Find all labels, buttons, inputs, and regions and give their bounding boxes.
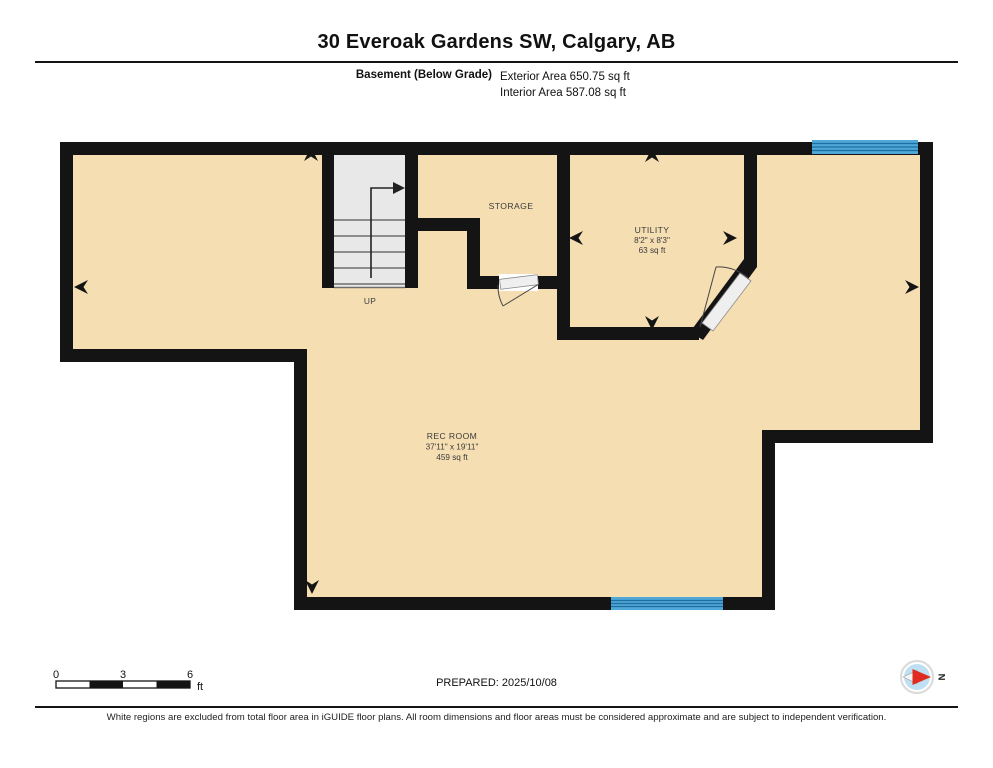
window-top-right [812,140,918,154]
floor-plan-canvas: STORAGE UTILITY 8'2" x 8'3" 63 sq ft REC… [0,0,993,768]
disclaimer-text: White regions are excluded from total fl… [0,712,993,723]
floor-area [73,155,920,597]
rec-room-area: 459 sq ft [436,453,468,462]
rec-room-dimensions: 37'11" x 19'11" [426,443,479,452]
prepared-date: PREPARED: 2025/10/08 [0,677,993,689]
rec-room-label: REC ROOM [427,431,477,441]
utility-label: UTILITY [635,225,670,235]
stairs-up-label: UP [364,296,376,306]
utility-dimensions: 8'2" x 8'3" [634,236,670,245]
utility-area: 63 sq ft [639,246,667,255]
staircase [334,155,405,288]
storage-label: STORAGE [489,201,534,211]
window-bottom [611,597,723,610]
footer-divider [35,706,958,708]
